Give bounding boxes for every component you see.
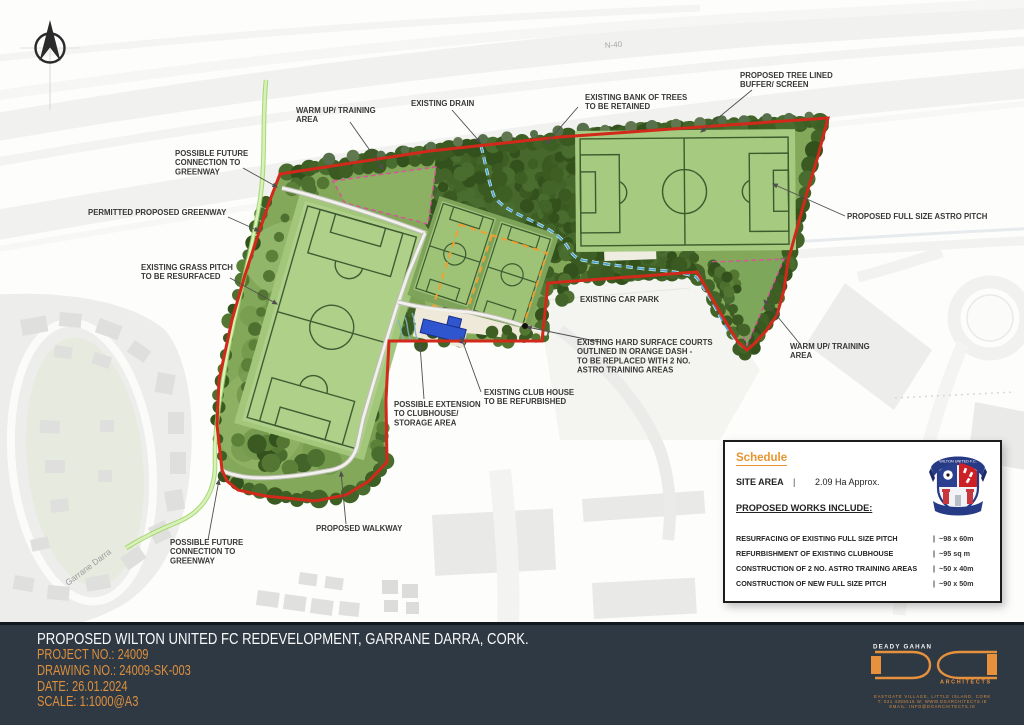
svg-text:GREENWAY: GREENWAY: [175, 167, 221, 176]
svg-text:WARM UP/ TRAINING: WARM UP/ TRAINING: [296, 106, 376, 115]
svg-text:TO BE RESURFACED: TO BE RESURFACED: [141, 272, 221, 281]
svg-text:N-40: N-40: [605, 40, 623, 50]
svg-text:DEADY GAHAN: DEADY GAHAN: [873, 644, 932, 651]
svg-text:EXISTING CLUB HOUSE: EXISTING CLUB HOUSE: [484, 388, 574, 397]
svg-text:TO BE REPLACED WITH 2 NO.: TO BE REPLACED WITH 2 NO.: [577, 356, 690, 365]
svg-text:EXISTING GRASS PITCH: EXISTING GRASS PITCH: [141, 263, 233, 272]
svg-text:OUTLINED IN ORANGE DASH -: OUTLINED IN ORANGE DASH -: [577, 347, 693, 356]
svg-text:PROPOSED TREE LINED: PROPOSED TREE LINED: [740, 71, 833, 80]
svg-text:WILTON UNITED F.C.: WILTON UNITED F.C.: [939, 460, 976, 464]
svg-text:PERMITTED PROPOSED GREENWAY: PERMITTED PROPOSED GREENWAY: [88, 208, 227, 217]
svg-text:EMAIL: INFO@DGARCHITECTS.IE: EMAIL: INFO@DGARCHITECTS.IE: [889, 704, 975, 709]
svg-text:BUFFER/ SCREEN: BUFFER/ SCREEN: [740, 80, 809, 89]
svg-text:EXISTING CAR PARK: EXISTING CAR PARK: [580, 295, 659, 304]
svg-text:ARCHITECTS: ARCHITECTS: [940, 680, 992, 686]
svg-text:GREENWAY: GREENWAY: [170, 556, 216, 565]
svg-text:CONNECTION TO: CONNECTION TO: [175, 158, 240, 167]
svg-text:POSSIBLE FUTURE: POSSIBLE FUTURE: [175, 149, 248, 158]
svg-text:WARM UP/ TRAINING: WARM UP/ TRAINING: [790, 342, 870, 351]
svg-text:AREA: AREA: [296, 115, 318, 124]
svg-text:AREA: AREA: [790, 351, 812, 360]
svg-text:TO BE RETAINED: TO BE RETAINED: [585, 102, 650, 111]
svg-text:PROPOSED WALKWAY: PROPOSED WALKWAY: [316, 524, 403, 533]
svg-text:PROPOSED FULL SIZE ASTRO PITCH: PROPOSED FULL SIZE ASTRO PITCH: [847, 212, 988, 221]
svg-text:STORAGE AREA: STORAGE AREA: [394, 418, 457, 427]
svg-text:EXISTING BANK OF TREES: EXISTING BANK OF TREES: [585, 93, 687, 102]
svg-text:ASTRO TRAINING AREAS: ASTRO TRAINING AREAS: [577, 366, 673, 375]
svg-text:POSSIBLE EXTENSION: POSSIBLE EXTENSION: [394, 400, 481, 409]
svg-text:TO CLUBHOUSE/: TO CLUBHOUSE/: [394, 409, 459, 418]
svg-text:EXISTING HARD SURFACE COURTS: EXISTING HARD SURFACE COURTS: [577, 338, 713, 347]
svg-text:POSSIBLE FUTURE: POSSIBLE FUTURE: [170, 538, 243, 547]
svg-text:CONNECTION TO: CONNECTION TO: [170, 547, 235, 556]
svg-text:TO BE REFURBISHED: TO BE REFURBISHED: [484, 397, 567, 406]
svg-text:EXISTING DRAIN: EXISTING DRAIN: [411, 99, 475, 108]
